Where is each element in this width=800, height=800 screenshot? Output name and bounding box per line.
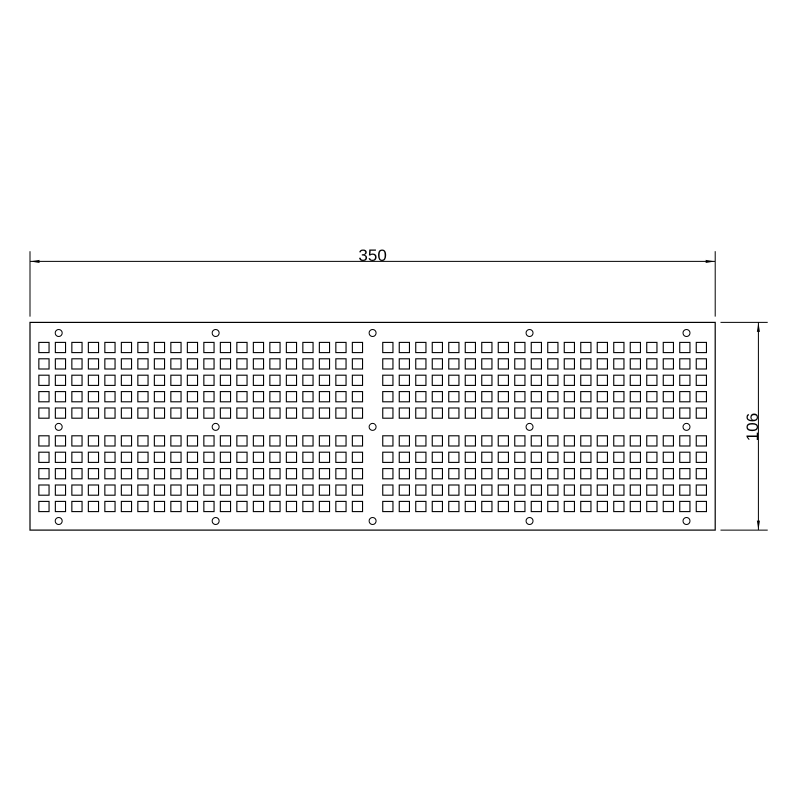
svg-text:350: 350 xyxy=(358,246,386,265)
svg-text:106: 106 xyxy=(743,413,762,441)
